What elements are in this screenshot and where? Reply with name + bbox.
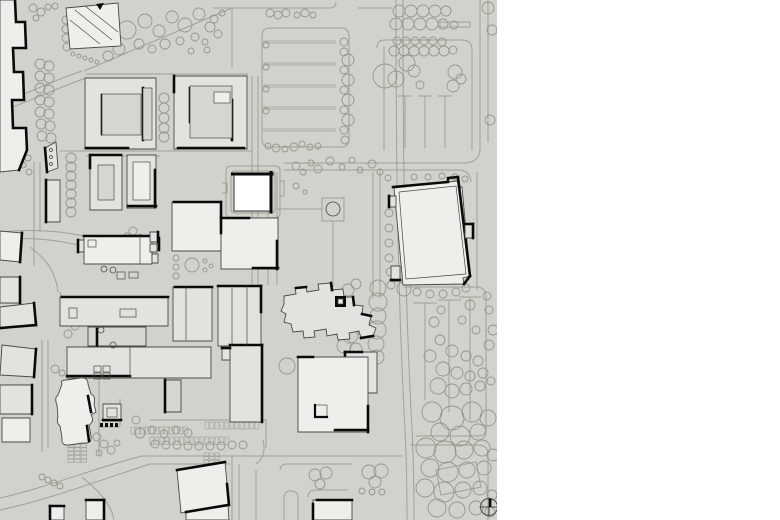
building-footprint	[218, 286, 261, 346]
detail-rect	[129, 272, 138, 278]
building-footprint	[230, 345, 262, 422]
building-footprint	[86, 500, 104, 520]
building-footprint	[298, 357, 368, 432]
bollard-mark	[105, 423, 108, 427]
building-footprint	[46, 180, 60, 222]
building-footprint	[50, 506, 64, 520]
building-shadow-edge	[296, 287, 306, 288]
building-footprint	[0, 231, 22, 262]
detail-rect	[117, 272, 125, 279]
building-footprint	[172, 202, 221, 251]
detail-rect	[143, 88, 152, 140]
site-plan-canvas	[0, 0, 497, 520]
building-shadow-edge	[331, 283, 332, 290]
building-footprint	[0, 385, 32, 414]
building-footprint	[0, 345, 36, 377]
highlighted-building-footprint	[234, 174, 271, 211]
page-margin	[497, 0, 780, 520]
site-plan	[0, 0, 497, 520]
detail-rect	[133, 162, 150, 200]
north-arrow-needle	[489, 499, 491, 508]
detail-rect	[98, 165, 114, 200]
building-footprint	[150, 244, 157, 252]
building-footprint	[66, 3, 121, 49]
building-footprint	[60, 297, 168, 326]
building-footprint	[173, 287, 212, 341]
building-footprint	[221, 218, 278, 269]
highlighted-building	[233, 173, 273, 213]
bollard-mark	[110, 423, 113, 427]
detail-rect	[338, 299, 343, 304]
detail-rect	[214, 92, 230, 103]
building-footprint	[67, 347, 211, 378]
building-footprint	[0, 277, 20, 303]
building-shadow-edge	[353, 297, 354, 305]
building-footprint	[165, 380, 181, 412]
building-footprint	[222, 348, 230, 360]
page	[0, 0, 780, 520]
bollard-mark	[100, 423, 103, 427]
detail-rect	[102, 94, 141, 135]
building-footprint	[313, 500, 352, 520]
building-footprint	[103, 404, 121, 421]
building-footprint	[152, 254, 158, 263]
building-footprint	[2, 418, 30, 442]
bollard-mark	[115, 423, 118, 427]
